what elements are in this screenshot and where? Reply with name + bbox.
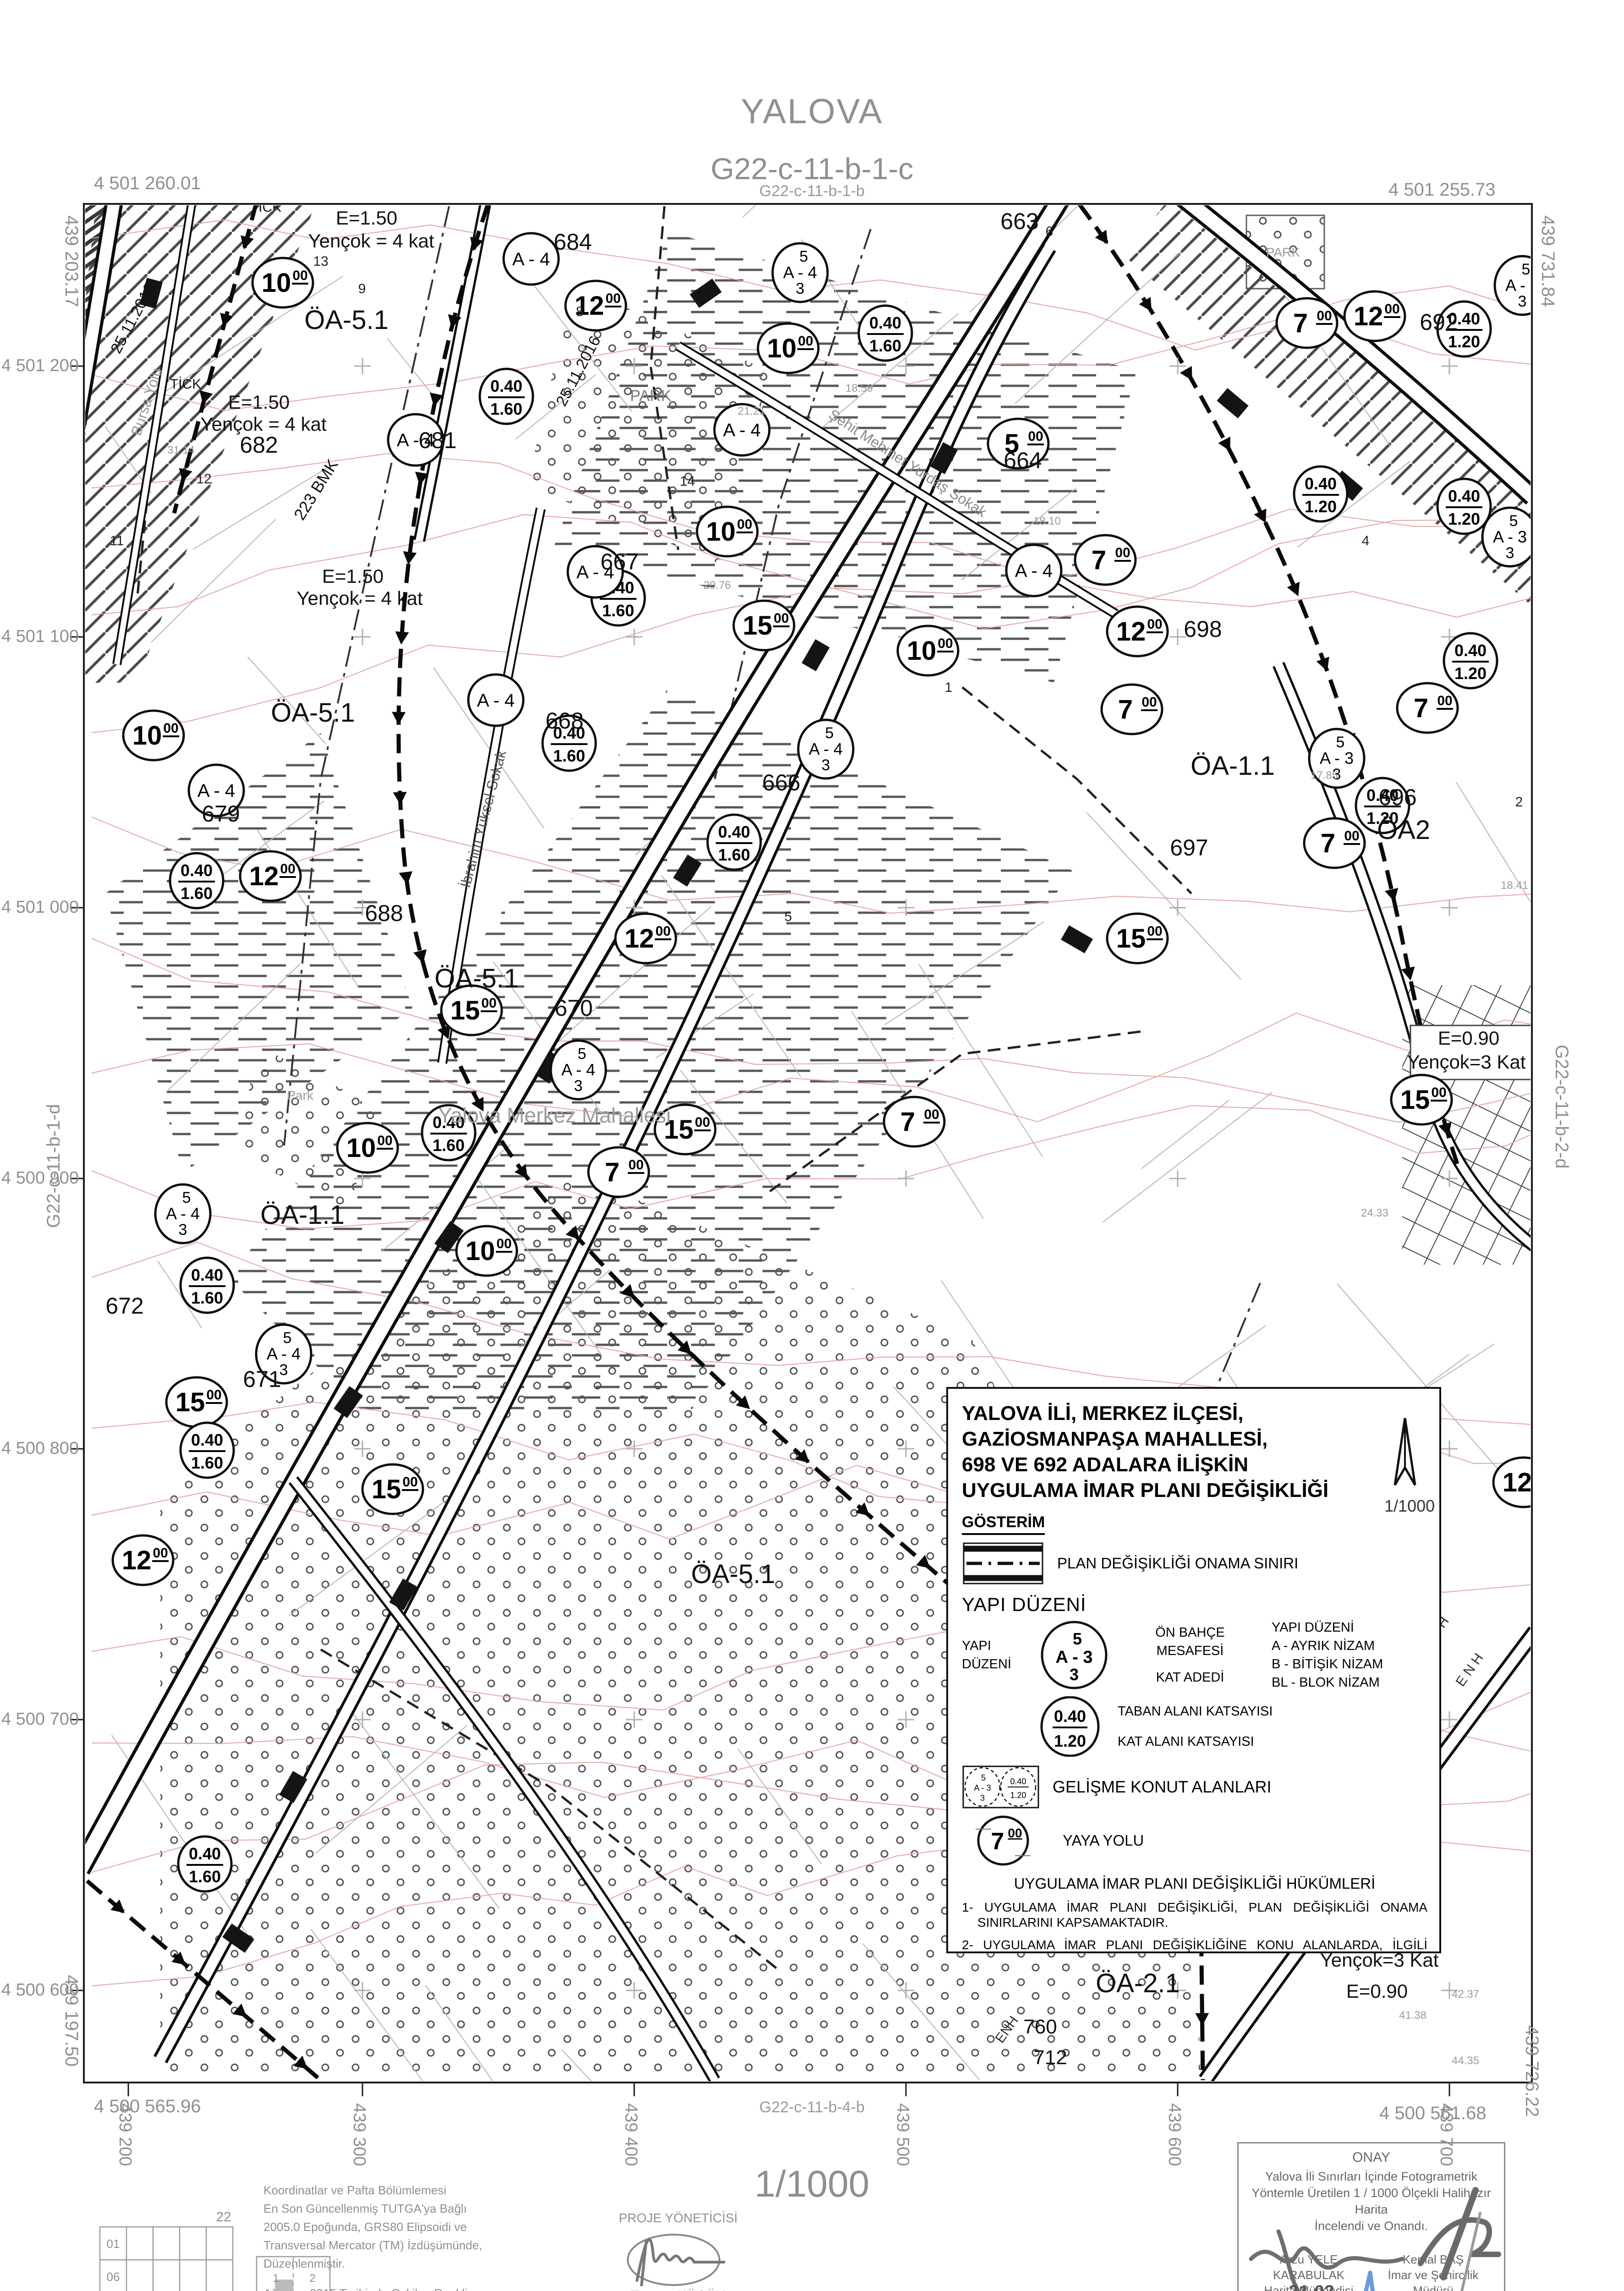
- circle2-top: 0.40: [1054, 1707, 1086, 1726]
- svg-text:12: 12: [1354, 301, 1383, 331]
- svg-text:7: 7: [900, 1107, 915, 1137]
- svg-text:00: 00: [280, 861, 295, 877]
- map-label: 13: [313, 254, 328, 269]
- zoning-annotation: 5A - 33: [1482, 508, 1537, 566]
- svg-text:0.40: 0.40: [718, 822, 750, 841]
- map-label: 18.59: [845, 382, 873, 395]
- zoning-annotation: 1500: [734, 601, 794, 650]
- svg-text:A - 3: A - 3: [1493, 527, 1527, 546]
- svg-text:A - 4: A - 4: [267, 1344, 301, 1363]
- circle1-bottom: 3: [1070, 1665, 1079, 1684]
- svg-text:A - 4: A - 4: [477, 691, 515, 711]
- onay-person-1: Arzu YELE KARABULAK Harita Mühendisi ...…: [1247, 2252, 1371, 2291]
- pafta-grid-labels: 01 06 11 a b d c 16 C 21 22 23 24 25: [103, 2237, 226, 2291]
- coord-top-left-e: 439 203.17: [61, 215, 82, 307]
- onay-line2: Yöntemle Üretilen 1 / 1000 Ölçekli Halih…: [1239, 2185, 1504, 2218]
- zoning-annotation: 700: [1277, 298, 1337, 348]
- map-label: 697: [1170, 835, 1208, 860]
- sheet-code-west: G22-c-11-b-1-d: [44, 1104, 64, 1228]
- clause-1: 1- UYGULAMA İMAR PLANI DEĞİŞİKLİĞİ, PLAN…: [962, 1900, 1427, 1930]
- svg-text:15: 15: [450, 996, 480, 1025]
- svg-text:00: 00: [1431, 1085, 1446, 1100]
- zoning-annotation: 1000: [123, 711, 184, 760]
- zoning-annotation: 5A - 43: [155, 1184, 210, 1243]
- circle1-top: 5: [1073, 1629, 1082, 1648]
- map-label: Park: [287, 1088, 314, 1102]
- svg-text:00: 00: [655, 924, 670, 939]
- svg-text:1.60: 1.60: [490, 400, 522, 418]
- map-label: 6: [1046, 224, 1053, 239]
- zoning-annotation: 1000: [337, 1123, 398, 1173]
- pafta-m2: 2: [309, 2272, 315, 2285]
- legend-scale: 1/1000: [1384, 1496, 1426, 1516]
- zoning-annotation: 0.401.60: [480, 369, 533, 424]
- svg-text:0.40: 0.40: [490, 377, 522, 395]
- map-label: E=1.50: [228, 391, 290, 413]
- svg-text:15: 15: [743, 611, 773, 641]
- svg-text:00: 00: [163, 721, 178, 736]
- svg-text:7: 7: [1092, 545, 1106, 575]
- zoning-annotation: 0.401.60: [178, 1836, 231, 1891]
- zoning-annotation: A - 4: [468, 674, 523, 726]
- svg-text:1.60: 1.60: [181, 884, 213, 903]
- svg-text:12: 12: [249, 861, 279, 891]
- pafta-grid-left: [100, 2227, 233, 2291]
- svg-text:1.20: 1.20: [1454, 664, 1487, 683]
- map-label: 696: [1378, 784, 1416, 810]
- svg-text:12: 12: [625, 924, 654, 954]
- map-label: 667: [600, 549, 638, 575]
- northing-label: 4 500 700: [0, 1710, 79, 1729]
- gelisme-label: GELİŞME KONUT ALANLARI: [1053, 1777, 1272, 1797]
- svg-text:0.40: 0.40: [1305, 474, 1337, 493]
- svg-text:3: 3: [1506, 544, 1514, 562]
- project-manager-block: PROJE YÖNETİCİSİ Turgay KÜÇÜK Harita Müh…: [596, 2211, 761, 2291]
- project-manager-title: PROJE YÖNETİCİSİ: [596, 2211, 761, 2225]
- zoning-annotation: 1200: [565, 281, 626, 330]
- svg-text:1.60: 1.60: [718, 845, 750, 864]
- svg-text:1.60: 1.60: [869, 336, 901, 355]
- svg-text:1.20: 1.20: [1305, 497, 1337, 516]
- svg-text:10: 10: [132, 721, 162, 751]
- onay-p2-role: İmar ve Şehircilik Müdürü: [1371, 2267, 1496, 2291]
- svg-text:00: 00: [402, 1474, 417, 1490]
- plan-boundary-label: PLAN DEĞİŞİKLİĞİ ONAMA SINIRI: [1057, 1555, 1298, 1572]
- svg-text:3: 3: [574, 1077, 583, 1095]
- map-label: 698: [1184, 616, 1222, 642]
- northing-label: 4 500 600: [0, 1980, 79, 2000]
- svg-text:00: 00: [292, 268, 307, 283]
- yaya-yolu-symbol: 7 00: [976, 1815, 1031, 1866]
- easting-label: 439 500: [893, 2103, 912, 2166]
- svg-text:A - 4: A - 4: [809, 740, 843, 758]
- svg-text:10: 10: [466, 1236, 495, 1266]
- coord-top-right-n: 4 501 255.73: [1388, 180, 1496, 200]
- zoning-annotation: 5A - 43: [551, 1041, 606, 1099]
- gelisme-konut-symbol: 5 A - 3 3 0.40 1.20: [962, 1765, 1040, 1809]
- map-label: 672: [105, 1293, 143, 1319]
- onay-line3: İncelendi ve Onandı.: [1239, 2218, 1504, 2234]
- map-label: ÖA-5.1: [304, 305, 389, 335]
- pafta-index: 22 G 01 06 11 a b d c 16 C 21 22 23 24 2…: [78, 2190, 335, 2291]
- map-label: 24.33: [1361, 1207, 1388, 1219]
- map-label: 663: [1000, 208, 1038, 234]
- gelisme-c2-top: 0.40: [1010, 1777, 1026, 1786]
- circle1-left-label: YAPI DÜZENİ: [962, 1637, 1040, 1673]
- coord-top-right-e: 439 731.84: [1537, 215, 1558, 307]
- coord-bottom-right-e: 439 726.22: [1521, 2025, 1542, 2117]
- map-label: 5: [785, 909, 792, 924]
- circle1-mid: A - 3: [1056, 1648, 1093, 1667]
- svg-text:3: 3: [822, 756, 830, 774]
- onay-title: ONAY: [1239, 2150, 1504, 2165]
- zoning-circle-symbol: 5 A - 3 3: [1040, 1621, 1108, 1689]
- map-label: 21.21: [738, 405, 765, 417]
- svg-text:1.60: 1.60: [602, 601, 634, 620]
- svg-text:A - 4: A - 4: [1015, 561, 1053, 581]
- zoning-annotation: 1000: [456, 1226, 517, 1276]
- svg-text:00: 00: [377, 1133, 392, 1148]
- zoning-annotation: A - 4: [504, 233, 559, 285]
- map-label: 692: [1420, 309, 1458, 335]
- svg-text:7: 7: [605, 1157, 620, 1187]
- map-label: 11: [110, 533, 124, 548]
- svg-text:00: 00: [481, 996, 496, 1011]
- zoning-annotation: 0.401.20: [1444, 633, 1497, 688]
- pafta-grid-right: 1 2 4 3: [257, 2257, 330, 2291]
- svg-text:00: 00: [938, 636, 953, 651]
- svg-text:15: 15: [176, 1387, 205, 1417]
- svg-text:00: 00: [206, 1387, 221, 1403]
- nizam-3: BL - BLOK NİZAM: [1272, 1673, 1383, 1692]
- zoning-annotation: 0.401.60: [170, 853, 223, 908]
- nizam-1: A - AYRIK NİZAM: [1272, 1637, 1383, 1655]
- circle1-r2-label: KAT ADEDİ: [1126, 1668, 1254, 1687]
- onay-person-2: Kemal BAŞ İmar ve Şehircilik Müdürü ....…: [1371, 2252, 1496, 2291]
- zoning-annotation: 5A - 43: [798, 720, 853, 778]
- sheet-code: G22-c-11-b-1-c: [0, 151, 1624, 186]
- nizam-2: B - BİTİŞİK NİZAM: [1272, 1655, 1383, 1673]
- svg-text:1.20: 1.20: [1448, 510, 1480, 528]
- svg-text:10: 10: [706, 517, 736, 547]
- map-label: 44.35: [1452, 2055, 1479, 2067]
- easting-label: 439 300: [349, 2103, 369, 2166]
- northing-label: 4 500 800: [0, 1439, 79, 1458]
- svg-text:0.40: 0.40: [189, 1844, 221, 1863]
- svg-text:00: 00: [737, 517, 752, 532]
- zoning-annotation: 700: [1397, 683, 1458, 733]
- northing-label: 4 500 900: [0, 1168, 79, 1188]
- svg-text:3: 3: [1518, 293, 1527, 310]
- map-label: ÖA2: [1377, 815, 1430, 845]
- zoning-annotation: 5A - 43: [773, 243, 828, 302]
- yaya-value: 7: [991, 1828, 1004, 1855]
- svg-text:1.60: 1.60: [191, 1288, 223, 1307]
- easting-label: 439 200: [115, 2103, 135, 2166]
- map-label: 712: [1033, 2046, 1067, 2069]
- svg-text:00: 00: [1437, 693, 1452, 708]
- map-label: 42.37: [1452, 1988, 1479, 2001]
- svg-text:15: 15: [1116, 924, 1146, 954]
- map-label: ÖA-1.1: [260, 1200, 345, 1230]
- circle2-r1-label: TABAN ALANI KATSAYISI: [1118, 1702, 1273, 1721]
- map-label: ÖA-5.1: [691, 1559, 775, 1589]
- plan-sheet: 1000120010001200700100015001000120012001…: [0, 0, 1624, 2291]
- zoning-annotation: 1200: [615, 914, 676, 963]
- svg-text:7: 7: [1293, 308, 1308, 338]
- pafta-01: 01: [107, 2237, 120, 2251]
- northing-label: 4 501 200: [0, 356, 79, 376]
- hukumler-heading: UYGULAMA İMAR PLANI DEĞİŞİKLİĞİ HÜKÜMLER…: [962, 1875, 1427, 1892]
- svg-text:A - 4: A - 4: [198, 781, 235, 801]
- kaks-circle-symbol: 0.40 1.20: [1040, 1696, 1100, 1757]
- svg-text:3: 3: [179, 1221, 187, 1239]
- svg-text:7: 7: [1118, 695, 1133, 724]
- svg-text:00: 00: [1028, 429, 1043, 444]
- zoning-annotation: 0.401.60: [181, 1423, 234, 1478]
- gelisme-c1-mid: A - 3: [974, 1783, 991, 1792]
- svg-text:3: 3: [796, 280, 805, 297]
- map-label: 2: [1515, 795, 1523, 810]
- map-label: 670: [554, 995, 593, 1021]
- coord-bottom-right-n: 4 500 561.68: [1379, 2103, 1487, 2124]
- map-label: Yençok = 4 kat: [296, 587, 422, 609]
- svg-text:1.60: 1.60: [433, 1136, 465, 1155]
- coord-bottom-left-n: 4 500 565.96: [94, 2096, 201, 2117]
- zoning-annotation: 1500: [166, 1377, 227, 1427]
- svg-text:0.40: 0.40: [1448, 487, 1480, 505]
- pafta-06: 06: [107, 2270, 120, 2284]
- map-label: 679: [202, 801, 240, 827]
- nizam-0: YAPI DÜZENİ: [1272, 1618, 1383, 1637]
- svg-text:10: 10: [767, 334, 797, 363]
- map-label: ÖA-5.1: [434, 964, 519, 993]
- easting-label: 439 400: [621, 2103, 641, 2166]
- svg-text:00: 00: [628, 1157, 643, 1173]
- map-label: 688: [365, 900, 403, 926]
- pafta-top-label: 22: [216, 2209, 231, 2225]
- svg-text:00: 00: [1141, 695, 1157, 710]
- map-label: 17.85: [1311, 769, 1338, 782]
- zoning-annotation: A - 4: [1006, 545, 1061, 596]
- sheet-code-north: G22-c-11-b-1-b: [0, 182, 1624, 200]
- onay-p1-role: Harita Mühendisi: [1247, 2283, 1371, 2291]
- svg-text:00: 00: [924, 1107, 939, 1122]
- svg-text:00: 00: [1344, 828, 1359, 844]
- svg-text:7: 7: [1414, 693, 1428, 723]
- page-title: YALOVA: [0, 92, 1624, 132]
- svg-text:12: 12: [122, 1546, 152, 1575]
- map-label: Yençok = 4 kat: [308, 230, 434, 252]
- gelisme-c1-bot: 3: [980, 1793, 985, 1803]
- zoning-annotation: 0.401.60: [181, 1258, 234, 1313]
- svg-text:A - 4: A - 4: [783, 263, 817, 282]
- legend-box: YALOVA İLİ, MERKEZ İLÇESİ, GAZİOSMANPAŞA…: [946, 1387, 1441, 1953]
- zoning-annotation: 1500: [1107, 914, 1168, 963]
- map-label: 684: [554, 229, 592, 255]
- svg-text:A - 4: A - 4: [561, 1060, 595, 1079]
- map-label: Yençok = 4 kat: [200, 413, 326, 435]
- svg-text:00: 00: [1317, 308, 1332, 323]
- map-label: 4: [1362, 533, 1370, 548]
- map-label: E=1.50: [336, 207, 397, 229]
- map-label: 682: [240, 432, 278, 458]
- zoning-annotation: 1200: [240, 851, 301, 901]
- map-label: E=0.90: [1438, 1027, 1499, 1049]
- svg-text:00: 00: [153, 1546, 168, 1561]
- map-label: 1: [945, 680, 953, 695]
- map-label: PARK: [630, 387, 671, 405]
- circle2-r2-label: KAT ALANI KATSAYISI: [1118, 1732, 1273, 1751]
- map-label: 41.38: [1399, 2009, 1426, 2022]
- svg-text:15: 15: [1400, 1085, 1430, 1115]
- zoning-annotation: 0.401.60: [859, 306, 912, 361]
- svg-text:1.60: 1.60: [191, 1453, 223, 1472]
- svg-text:00: 00: [1384, 301, 1399, 317]
- svg-text:A - 4: A - 4: [723, 420, 761, 440]
- zoning-annotation: 0.401.20: [1294, 466, 1347, 521]
- map-label: 9: [358, 281, 366, 296]
- map-label: 14: [680, 474, 695, 489]
- zoning-annotation: 700: [1075, 535, 1136, 585]
- zoning-annotation: 1000: [252, 258, 313, 307]
- svg-text:12: 12: [1503, 1468, 1532, 1497]
- nizam-list: YAPI DÜZENİ A - AYRIK NİZAM B - BİTİŞİK …: [1272, 1618, 1383, 1692]
- easting-label: 439 600: [1164, 2103, 1184, 2166]
- zoning-annotation: 1000: [758, 323, 818, 373]
- svg-text:00: 00: [1147, 924, 1162, 939]
- map-label: 12: [196, 471, 211, 487]
- svg-text:00: 00: [605, 291, 620, 306]
- map-label: 664: [1004, 448, 1042, 473]
- yaya-label: YAYA YOLU: [1063, 1832, 1144, 1849]
- plan-boundary-symbol: [962, 1541, 1044, 1585]
- signature-turgay: [619, 2225, 738, 2291]
- zoning-annotation: 1000: [898, 626, 958, 675]
- map-label: PARK: [1266, 245, 1300, 259]
- legend-title: YALOVA İLİ, MERKEZ İLÇESİ, GAZİOSMANPAŞA…: [962, 1401, 1347, 1503]
- onay-p2-name: Kemal BAŞ: [1371, 2252, 1496, 2267]
- approval-box: ONAY Yalova İli Sınırları İçinde Fotogra…: [1237, 2142, 1505, 2291]
- zoning-annotation: 1000: [697, 507, 757, 556]
- zoning-annotation: 700: [1102, 685, 1162, 734]
- map-label: ÖA-1.1: [1191, 751, 1275, 781]
- svg-text:7: 7: [1321, 828, 1335, 858]
- svg-text:12: 12: [1116, 617, 1146, 647]
- svg-text:0.40: 0.40: [869, 313, 901, 332]
- svg-text:A - 4: A - 4: [512, 249, 550, 269]
- zoning-annotation: 1200: [1344, 291, 1405, 341]
- pafta-m1: 1: [273, 2272, 279, 2285]
- circle2-bottom: 1.20: [1054, 1732, 1086, 1750]
- gelisme-c2-bot: 1.20: [1010, 1791, 1026, 1800]
- svg-text:00: 00: [798, 334, 813, 349]
- svg-text:0.40: 0.40: [191, 1266, 223, 1284]
- svg-text:0.40: 0.40: [191, 1431, 223, 1449]
- yapi-duzeni-heading: YAPI DÜZENİ: [962, 1594, 1427, 1616]
- northing-label: 4 501 100: [0, 627, 79, 647]
- svg-text:15: 15: [372, 1474, 401, 1504]
- map-label: ÖA-2.1: [1096, 1968, 1180, 1998]
- svg-text:00: 00: [496, 1236, 511, 1251]
- map-label: 671: [243, 1366, 281, 1392]
- zoning-annotation: 700: [588, 1147, 649, 1197]
- map-label: Yalova Merkez Mahallesi: [438, 1103, 671, 1127]
- zoning-annotation: 700: [1304, 818, 1365, 868]
- svg-text:A - 4: A - 4: [166, 1204, 200, 1223]
- svg-text:10: 10: [346, 1133, 376, 1163]
- map-label: 18.41: [1501, 879, 1528, 892]
- svg-text:1.60: 1.60: [189, 1867, 221, 1886]
- map-label: 31.14: [167, 444, 195, 456]
- map-label: 18.10: [1033, 515, 1061, 527]
- svg-text:00: 00: [1147, 617, 1162, 632]
- zoning-annotation: 700: [884, 1097, 944, 1146]
- north-arrow-icon: [1387, 1416, 1423, 1490]
- onay-line1: Yalova İli Sınırları İçinde Fotogrametri…: [1239, 2168, 1504, 2185]
- zoning-annotation: 1500: [1391, 1075, 1452, 1124]
- map-label: 20.76: [703, 579, 731, 592]
- zoning-annotation: 1200: [113, 1535, 173, 1585]
- svg-text:10: 10: [262, 268, 291, 298]
- gelisme-c1-top: 5: [981, 1773, 986, 1782]
- circle1-r1-label: ÖN BAHÇE MESAFESİ: [1126, 1623, 1254, 1660]
- map-label: 666: [762, 770, 800, 795]
- map-label: 681: [418, 428, 456, 453]
- svg-text:00: 00: [1115, 545, 1130, 560]
- yaya-sup: 00: [1008, 1826, 1022, 1840]
- north-arrow-block: 1/1000: [1384, 1416, 1426, 1516]
- svg-text:0.40: 0.40: [181, 861, 213, 880]
- coord-top-left-n: 4 501 260.01: [94, 173, 201, 194]
- onay-p1-name: Arzu YELE KARABULAK: [1247, 2252, 1371, 2283]
- svg-text:00: 00: [774, 611, 789, 626]
- zoning-annotation: 1500: [362, 1464, 423, 1514]
- map-label: E=1.50: [322, 565, 384, 587]
- map-label: 760: [1023, 2016, 1057, 2038]
- map-label: TİCK: [170, 377, 201, 392]
- svg-text:10: 10: [907, 636, 937, 666]
- svg-text:0.40: 0.40: [1454, 641, 1487, 660]
- map-label: 8: [576, 304, 584, 319]
- map-label: Yençok=3 Kat: [1407, 1051, 1526, 1073]
- svg-text:00: 00: [695, 1115, 710, 1130]
- legend-gosterim: GÖSTERİM: [962, 1513, 1045, 1535]
- zoning-annotation: 1200: [1107, 607, 1168, 656]
- northing-label: 4 501 000: [0, 898, 79, 917]
- sheet-code-east: G22-c-11-b-2-d: [1551, 1045, 1572, 1168]
- zoning-annotation: 0.401.20: [1437, 479, 1491, 534]
- svg-text:1.60: 1.60: [553, 746, 585, 765]
- map-label: 668: [545, 708, 583, 734]
- map-label: ÖA-5.1: [271, 698, 355, 728]
- zoning-annotation: 0.401.60: [708, 815, 761, 870]
- map-label: E=0.90: [1346, 1980, 1408, 2002]
- svg-text:A - 3: A - 3: [1320, 749, 1354, 767]
- clause-2: 2- UYGULAMA İMAR PLANI DEĞİŞİKLİĞİNE KON…: [962, 1937, 1427, 1953]
- svg-text:1.20: 1.20: [1448, 332, 1480, 351]
